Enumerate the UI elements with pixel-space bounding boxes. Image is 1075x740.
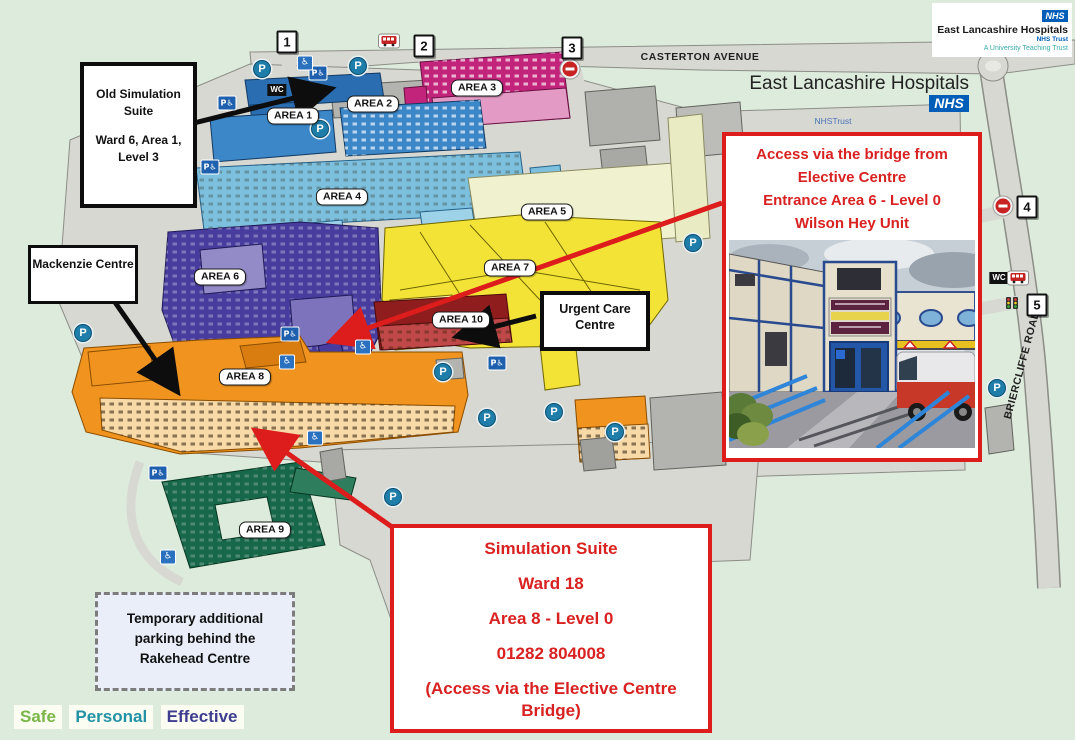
sim-line-2: Ward 18 [408,573,694,595]
access-line-2: Elective Centre [730,166,974,189]
callout-simulation-suite: Simulation Suite Ward 18 Area 8 - Level … [390,524,712,733]
accessible-parking-icon: P♿ [200,160,219,175]
no-entry-icon [994,197,1013,216]
entrance-marker-2: 2 [414,35,435,58]
area-label-6: AREA 6 [194,269,246,286]
sim-line-5: (Access via the Elective Centre Bridge) [408,678,694,722]
accessible-parking-icon: P♿ [280,327,299,342]
entrance-marker-3: 3 [562,37,583,60]
access-line-1: Access via the bridge from [730,143,974,166]
accessible-icon: ♿ [297,56,313,71]
callout-access-via-bridge: Access via the bridge from Elective Cent… [722,132,982,462]
trust-values-footer: Safe Personal Effective [14,705,247,729]
sim-line-1: Simulation Suite [408,538,694,560]
accessible-parking-icon: P♿ [487,356,506,371]
road-label-casterton-avenue: CASTERTON AVENUE [641,51,760,63]
callout-urgent-care-centre: Urgent Care Centre [540,291,650,351]
header-org-name: East Lancashire Hospitals [749,73,969,94]
nhs-logo-large: NHS [929,95,969,112]
sim-line-4: 01282 804008 [408,643,694,665]
accessible-icon: ♿ [355,340,371,355]
accessible-parking-icon: P♿ [217,96,236,111]
accessible-icon: ♿ [307,431,323,446]
parking-icon: P [684,234,702,252]
corner-tagline: A University Teaching Trust [936,44,1068,53]
area-label-5: AREA 5 [521,204,573,221]
bus-stop-icon [1007,271,1029,286]
callout-mackenzie-centre: Mackenzie Centre [28,245,138,304]
accessible-icon: ♿ [160,550,176,565]
accessible-icon: ♿ [279,355,295,370]
value-effective: Effective [161,705,244,729]
area-label-1: AREA 1 [267,108,319,125]
bus-icon [378,34,400,49]
access-line-3: Entrance Area 6 - Level 0 [730,189,974,212]
old-sim-detail: Ward 6, Area 1, Level 3 [87,132,190,166]
entrance-photo [729,240,975,448]
area-label-10: AREA 10 [432,312,490,329]
sim-line-3: Area 8 - Level 0 [408,608,694,630]
nhs-logo: NHS [1042,10,1068,22]
parking-icon: P [434,363,452,381]
entrance-marker-5: 5 [1027,294,1048,317]
mackenzie-label: Mackenzie Centre [31,254,135,275]
old-sim-title: Old Simulation Suite [87,86,190,120]
entrance-marker-1: 1 [277,31,298,54]
area-label-8: AREA 8 [219,369,271,386]
wc-icon: WC [267,84,286,96]
parking-icon: P [545,403,563,421]
entrance-marker-4: 4 [1017,196,1038,219]
corner-trust-logo: NHS East Lancashire Hospitals NHS Trust … [932,3,1072,57]
area-label-7: AREA 7 [484,260,536,277]
access-line-4: Wilson Hey Unit [730,212,974,235]
area-label-4: AREA 4 [316,189,368,206]
parking-icon: P [478,409,496,427]
no-entry-icon [561,60,580,79]
parking-icon: P [384,488,402,506]
traffic-light-icon [1005,297,1019,309]
area-label-9: AREA 9 [239,522,291,539]
urgent-care-label: Urgent Care Centre [544,301,646,333]
value-personal: Personal [69,705,153,729]
accessible-parking-icon: P♿ [148,466,167,481]
callout-old-simulation-suite: Old Simulation Suite Ward 6, Area 1, Lev… [80,62,197,208]
wc-icon: WC [989,272,1008,284]
parking-icon: P [349,57,367,75]
temporary-parking-text: Temporary additional parking behind the … [108,609,282,669]
hospital-map-page: NHS East Lancashire Hospitals NHS Trust … [0,0,1075,740]
callout-temporary-parking: Temporary additional parking behind the … [95,592,295,691]
header-trust: NHSTrust [737,116,929,126]
parking-icon: P [606,423,624,441]
corner-trust-name: NHS Trust [936,36,1068,44]
parking-icon: P [253,60,271,78]
parking-icon: P [988,379,1006,397]
area-label-3: AREA 3 [451,80,503,97]
area-label-2: AREA 2 [347,96,399,113]
value-safe: Safe [14,705,62,729]
corner-org-name: East Lancashire Hospitals [936,24,1068,36]
parking-icon: P [74,324,92,342]
